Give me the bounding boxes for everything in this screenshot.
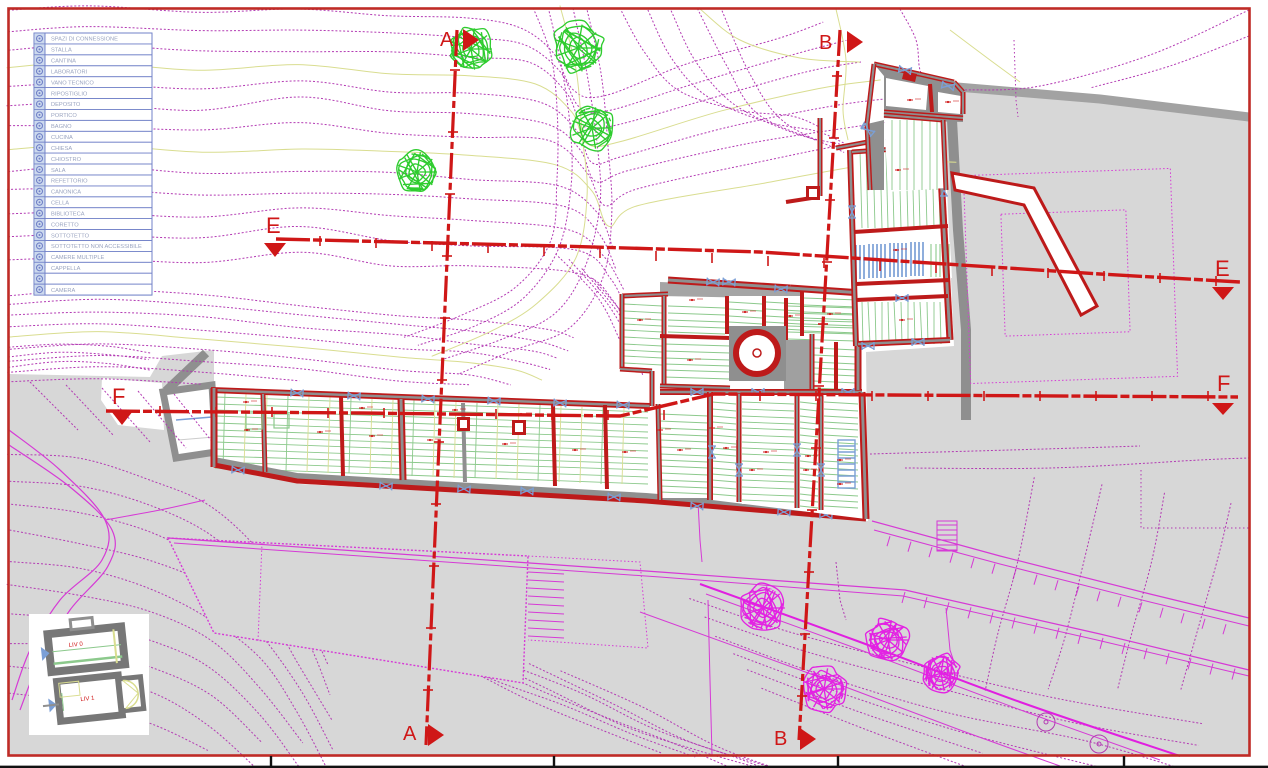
svg-text:STALLA: STALLA (51, 48, 72, 54)
svg-text:B: B (774, 728, 787, 750)
svg-text:SALA: SALA (51, 168, 66, 174)
svg-text:CAMERE MULTIPLE: CAMERE MULTIPLE (51, 255, 105, 261)
svg-text:REFETTORIO: REFETTORIO (51, 179, 88, 185)
svg-text:CUCINA: CUCINA (51, 135, 73, 141)
svg-text:A: A (403, 723, 417, 745)
svg-text:CHIOSTRO: CHIOSTRO (51, 157, 82, 163)
svg-text:CHIESA: CHIESA (51, 146, 72, 152)
svg-text:CAPPELLA: CAPPELLA (51, 266, 81, 272)
svg-text:RIPOSTIGLIO: RIPOSTIGLIO (51, 91, 88, 97)
svg-text:SOTTOTETTO NON ACCESSIBILE: SOTTOTETTO NON ACCESSIBILE (51, 244, 142, 250)
svg-text:PORTICO: PORTICO (51, 113, 77, 119)
svg-text:CELLA: CELLA (51, 201, 69, 207)
svg-text:CANONICA: CANONICA (51, 190, 81, 196)
svg-text:BIBLIOTECA: BIBLIOTECA (51, 211, 85, 217)
svg-text:VANO TECNICO: VANO TECNICO (51, 80, 94, 86)
svg-text:CANTINA: CANTINA (51, 59, 76, 65)
svg-text:LABORATORI: LABORATORI (51, 70, 88, 76)
svg-text:CAMERA: CAMERA (51, 288, 76, 294)
svg-text:CORETTO: CORETTO (51, 222, 79, 228)
svg-text:DEPOSITO: DEPOSITO (51, 102, 81, 108)
svg-text:B: B (819, 32, 832, 54)
svg-text:F: F (1217, 371, 1230, 396)
svg-text:A: A (440, 29, 454, 51)
svg-text:E: E (266, 213, 281, 238)
svg-text:E: E (1215, 256, 1230, 281)
svg-text:F: F (112, 384, 125, 409)
svg-text:BAGNO: BAGNO (51, 124, 72, 130)
svg-text:SPAZI DI CONNESSIONE: SPAZI DI CONNESSIONE (51, 37, 118, 43)
svg-text:SOTTOTETTO: SOTTOTETTO (51, 233, 90, 239)
